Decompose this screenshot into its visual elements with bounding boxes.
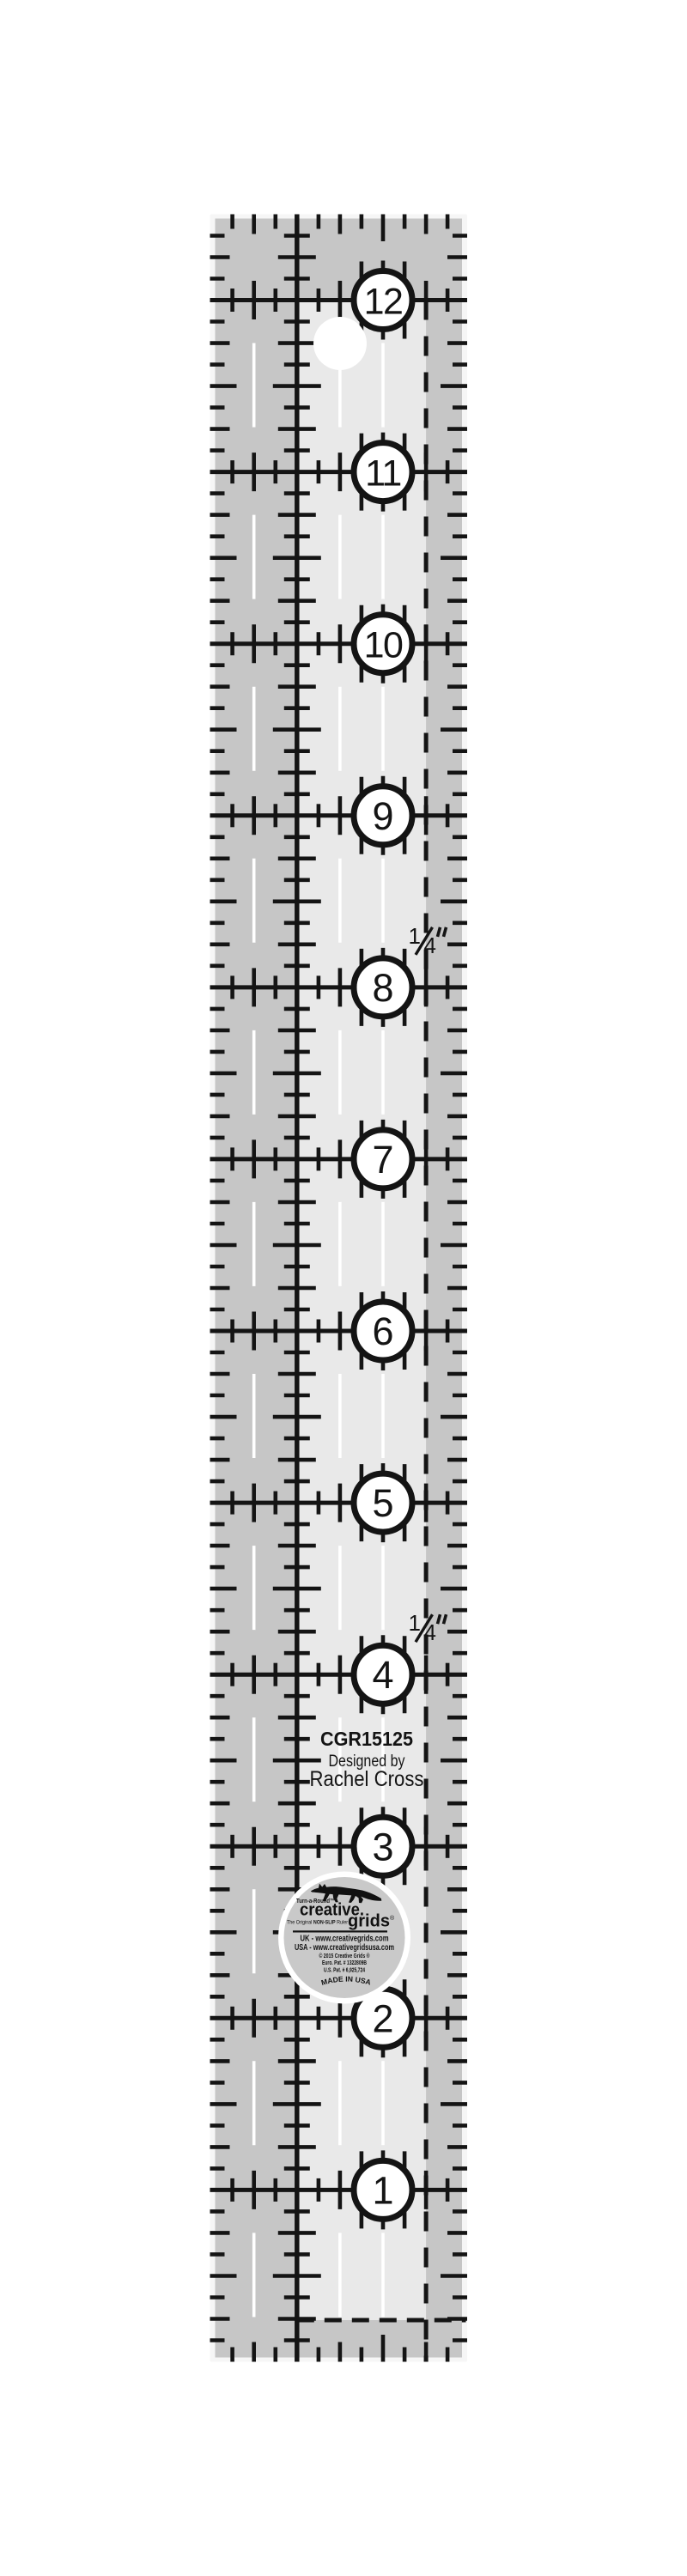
svg-text:The Original NON-SLIP Ruler: The Original NON-SLIP Ruler: [287, 1920, 349, 1926]
svg-text:U.S. Pat. # 6,925,724: U.S. Pat. # 6,925,724: [324, 1968, 365, 1974]
svg-text:2: 2: [372, 1996, 393, 2040]
svg-text:1: 1: [372, 2168, 393, 2212]
svg-text:10: 10: [364, 625, 403, 666]
svg-text:grids: grids: [348, 1912, 390, 1931]
svg-text:Rachel Cross: Rachel Cross: [310, 1767, 424, 1791]
svg-text:12: 12: [364, 282, 403, 323]
svg-text:USA - www.creativegridsusa.com: USA - www.creativegridsusa.com: [295, 1942, 394, 1953]
svg-text:CGR15125: CGR15125: [320, 1728, 413, 1750]
svg-text:5: 5: [372, 1481, 393, 1525]
svg-text:11: 11: [365, 453, 401, 495]
svg-text:Euro. Pat. # 1322809B: Euro. Pat. # 1322809B: [322, 1960, 367, 1966]
svg-text:6: 6: [372, 1309, 393, 1353]
svg-text:8: 8: [372, 966, 393, 1010]
svg-text:© 2015 Creative Grids ®: © 2015 Creative Grids ®: [319, 1953, 371, 1959]
svg-text:1: 1: [409, 923, 421, 949]
svg-text:3: 3: [372, 1825, 393, 1868]
svg-text:7: 7: [372, 1138, 393, 1182]
svg-text:4: 4: [372, 1653, 393, 1697]
svg-text:9: 9: [372, 794, 393, 838]
svg-text:1: 1: [409, 1610, 421, 1636]
svg-text:®: ®: [390, 1915, 395, 1922]
